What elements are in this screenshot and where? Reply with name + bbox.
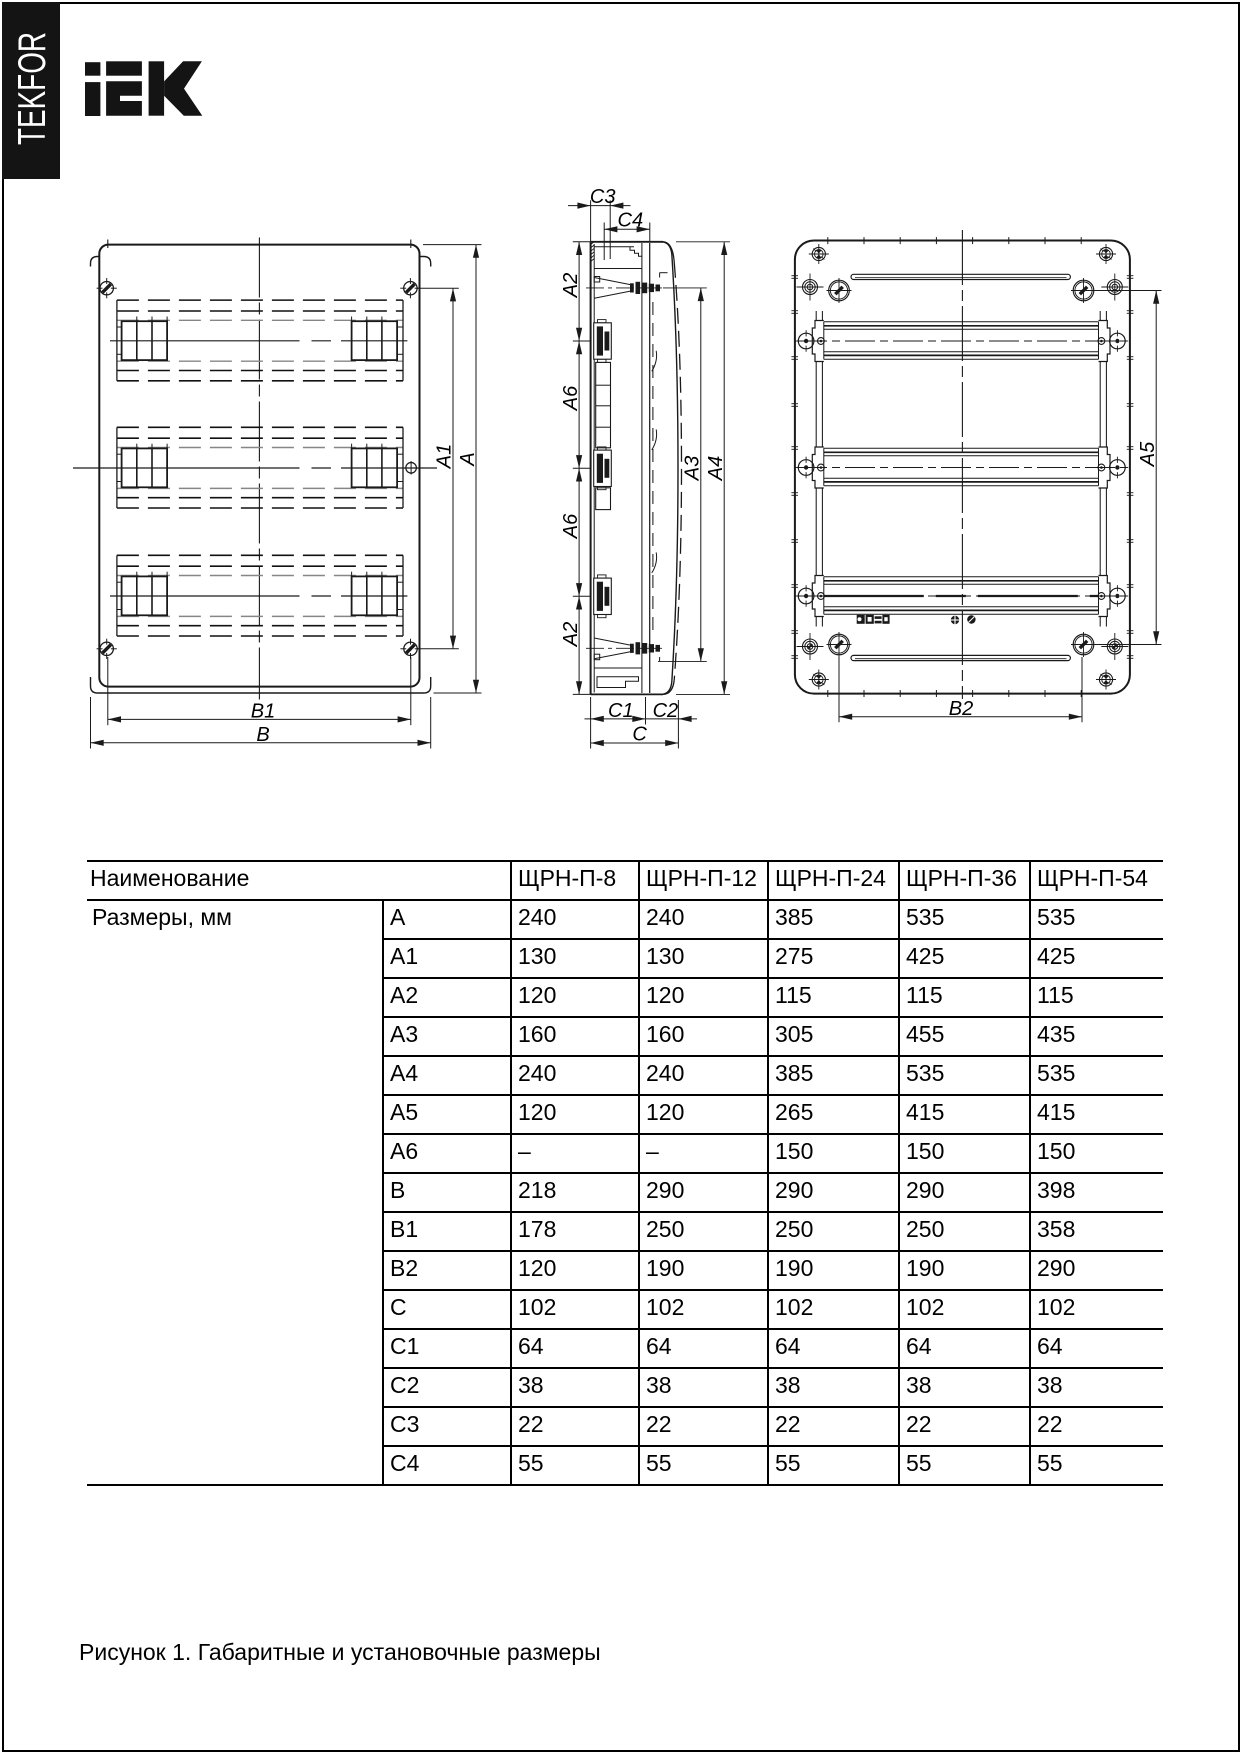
svg-text:C4: C4: [618, 210, 644, 232]
svg-text:A6: A6: [560, 385, 582, 411]
svg-text:A5: A5: [1137, 441, 1159, 467]
svg-text:A4: A4: [705, 456, 727, 481]
svg-text:C1: C1: [608, 700, 634, 722]
svg-text:A2: A2: [560, 273, 582, 298]
svg-text:A3: A3: [681, 456, 703, 481]
svg-text:A1: A1: [434, 444, 456, 469]
svg-text:A6: A6: [560, 513, 582, 539]
svg-text:B1: B1: [251, 701, 275, 723]
svg-text:A: A: [457, 452, 479, 466]
svg-text:C: C: [632, 724, 647, 746]
svg-text:A2: A2: [560, 622, 582, 647]
svg-text:C2: C2: [653, 700, 679, 722]
svg-text:B2: B2: [949, 698, 973, 720]
svg-text:C3: C3: [590, 186, 616, 208]
svg-text:B: B: [256, 724, 269, 746]
